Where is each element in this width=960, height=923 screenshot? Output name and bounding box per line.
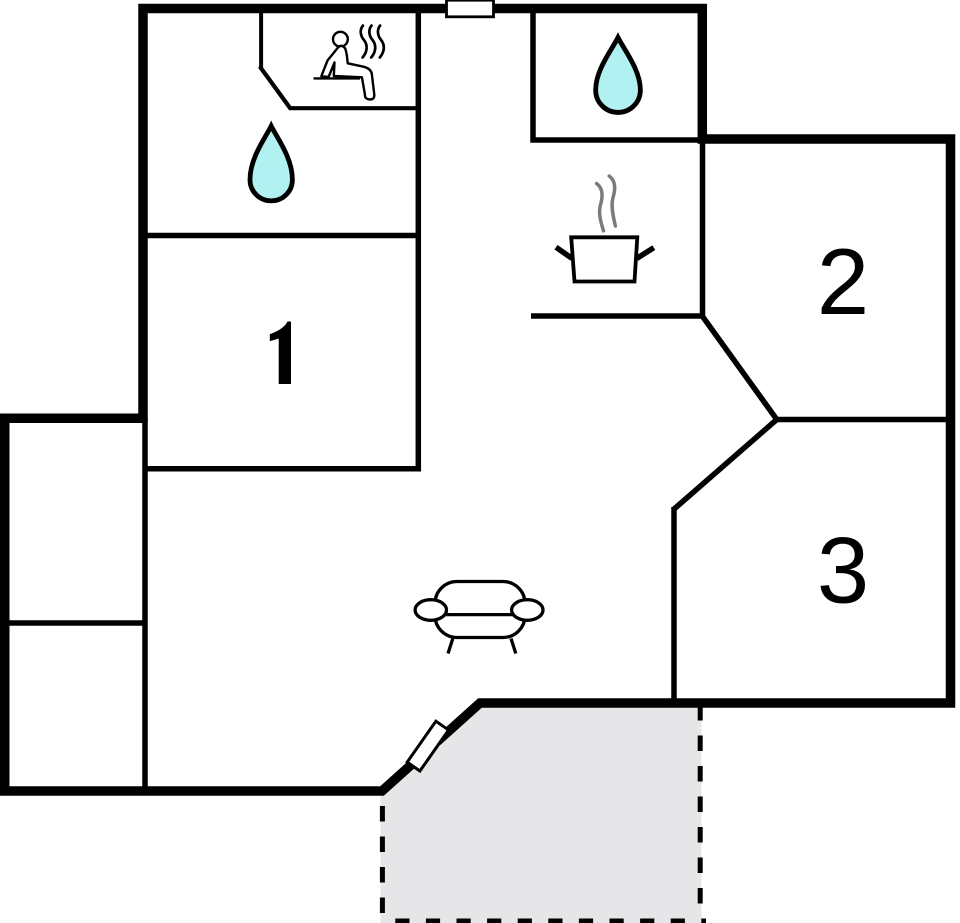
svg-text:3: 3 bbox=[817, 518, 869, 623]
svg-text:2: 2 bbox=[817, 229, 869, 334]
